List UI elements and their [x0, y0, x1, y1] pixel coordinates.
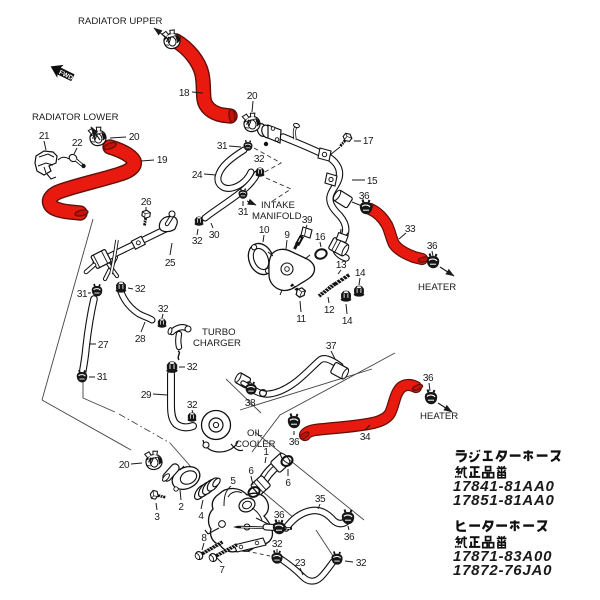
svg-text:30: 30: [209, 230, 220, 241]
svg-text:COOLER: COOLER: [235, 439, 276, 450]
svg-text:28: 28: [135, 334, 146, 345]
svg-text:12: 12: [324, 305, 335, 316]
svg-text:18: 18: [179, 88, 190, 99]
svg-text:32: 32: [254, 154, 265, 165]
svg-text:10: 10: [259, 225, 270, 236]
svg-text:36: 36: [344, 532, 355, 543]
svg-text:14: 14: [355, 268, 366, 279]
svg-text:37: 37: [326, 341, 337, 352]
svg-text:32: 32: [272, 539, 283, 550]
svg-text:CHARGER: CHARGER: [193, 338, 241, 349]
svg-text:4: 4: [198, 511, 204, 522]
svg-text:8: 8: [201, 533, 207, 544]
svg-text:32: 32: [192, 236, 203, 247]
svg-text:20: 20: [247, 91, 258, 102]
svg-text:17851-81AA0: 17851-81AA0: [453, 492, 555, 509]
svg-text:20: 20: [129, 132, 140, 143]
svg-text:33: 33: [405, 224, 416, 235]
svg-text:13: 13: [336, 260, 347, 271]
svg-text:15: 15: [367, 176, 378, 187]
svg-text:32: 32: [356, 558, 367, 569]
svg-text:39: 39: [302, 215, 313, 226]
svg-text:34: 34: [360, 432, 371, 443]
svg-text:25: 25: [165, 258, 176, 269]
svg-text:TURBO: TURBO: [202, 327, 236, 338]
svg-text:32: 32: [187, 400, 198, 411]
svg-text:6: 6: [285, 478, 291, 489]
svg-text:MANIFOLD: MANIFOLD: [252, 211, 302, 222]
svg-text:16: 16: [315, 232, 326, 243]
svg-text:21: 21: [39, 131, 50, 142]
svg-text:7: 7: [219, 565, 225, 576]
svg-text:31: 31: [238, 207, 249, 218]
svg-text:27: 27: [98, 340, 109, 351]
svg-text:36: 36: [274, 510, 285, 521]
svg-text:RADIATOR UPPER: RADIATOR UPPER: [78, 16, 162, 27]
svg-text:11: 11: [296, 314, 306, 325]
svg-text:36: 36: [289, 437, 300, 448]
svg-text:14: 14: [342, 316, 353, 327]
svg-text:HEATER: HEATER: [420, 411, 458, 422]
svg-text:35: 35: [315, 494, 326, 505]
svg-text:36: 36: [423, 373, 434, 384]
svg-text:31: 31: [77, 289, 88, 300]
svg-text:20: 20: [119, 460, 130, 471]
svg-text:INTAKE: INTAKE: [261, 200, 295, 211]
svg-text:38: 38: [245, 398, 256, 409]
svg-text:36: 36: [427, 241, 438, 252]
svg-text:32: 32: [187, 362, 198, 373]
svg-text:17: 17: [363, 136, 374, 147]
svg-text:OIL: OIL: [247, 428, 263, 439]
svg-text:2: 2: [178, 502, 184, 513]
svg-text:36: 36: [359, 191, 370, 202]
svg-text:32: 32: [158, 304, 169, 315]
svg-text:29: 29: [141, 390, 152, 401]
svg-text:22: 22: [72, 138, 83, 149]
svg-text:31: 31: [217, 141, 228, 152]
svg-text:RADIATOR LOWER: RADIATOR LOWER: [32, 112, 119, 123]
svg-text:23: 23: [295, 558, 306, 569]
svg-text:19: 19: [157, 155, 168, 166]
svg-text:6: 6: [248, 466, 254, 477]
svg-text:5: 5: [230, 476, 236, 487]
svg-text:3: 3: [154, 512, 160, 523]
svg-text:24: 24: [192, 170, 203, 181]
svg-text:1: 1: [263, 447, 269, 458]
svg-text:9: 9: [284, 230, 290, 241]
svg-text:31: 31: [97, 372, 108, 383]
svg-text:26: 26: [141, 197, 152, 208]
svg-text:32: 32: [135, 284, 146, 295]
svg-text:HEATER: HEATER: [418, 282, 456, 293]
svg-text:17872-76JA0: 17872-76JA0: [453, 562, 552, 579]
